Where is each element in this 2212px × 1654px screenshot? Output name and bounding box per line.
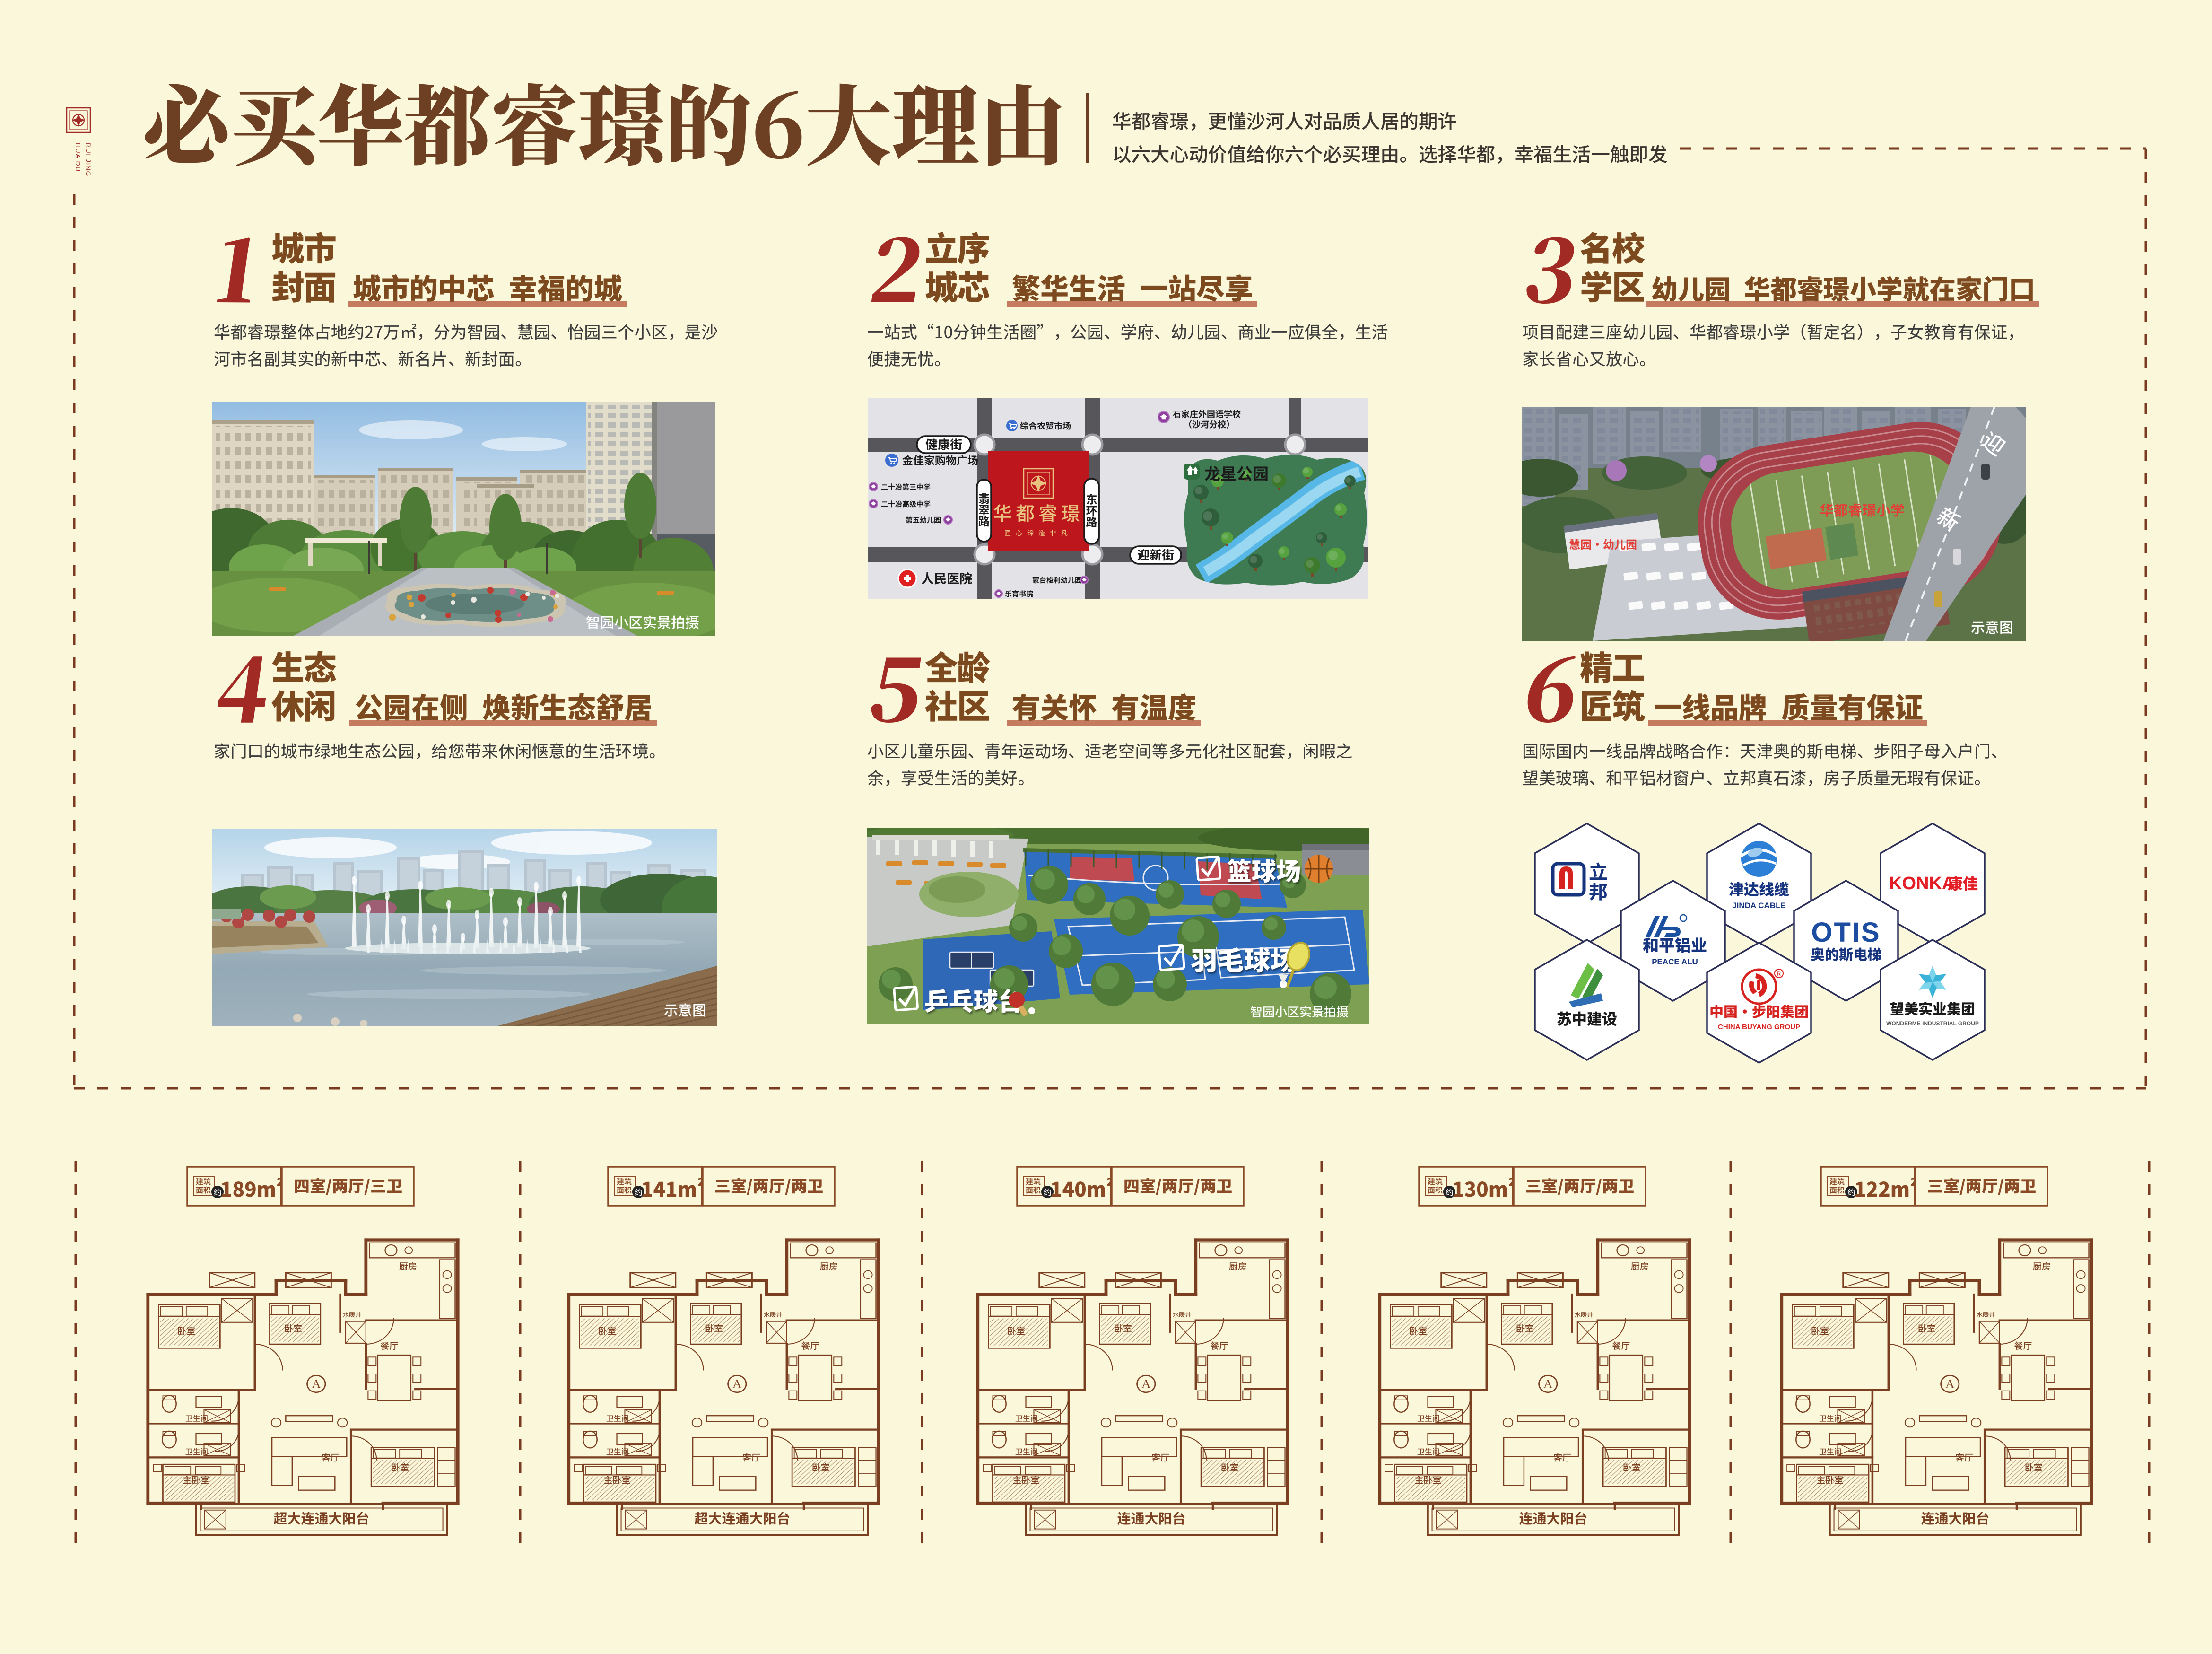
svg-text:R: R	[1777, 971, 1781, 977]
svg-text:OTIS: OTIS	[1811, 917, 1881, 948]
svg-text:PEACE ALU: PEACE ALU	[1652, 957, 1698, 966]
svg-text:KONKA: KONKA	[1889, 874, 1955, 893]
svg-text:RUI JING: RUI JING	[85, 143, 92, 177]
svg-text:CHINA BUYANG GROUP: CHINA BUYANG GROUP	[1718, 1023, 1800, 1031]
svg-text:JINDA CABLE: JINDA CABLE	[1732, 901, 1786, 910]
svg-text:WONDERME INDUSTRIAL GROUP: WONDERME INDUSTRIAL GROUP	[1886, 1020, 1979, 1027]
svg-text:HUA DU: HUA DU	[74, 143, 82, 172]
